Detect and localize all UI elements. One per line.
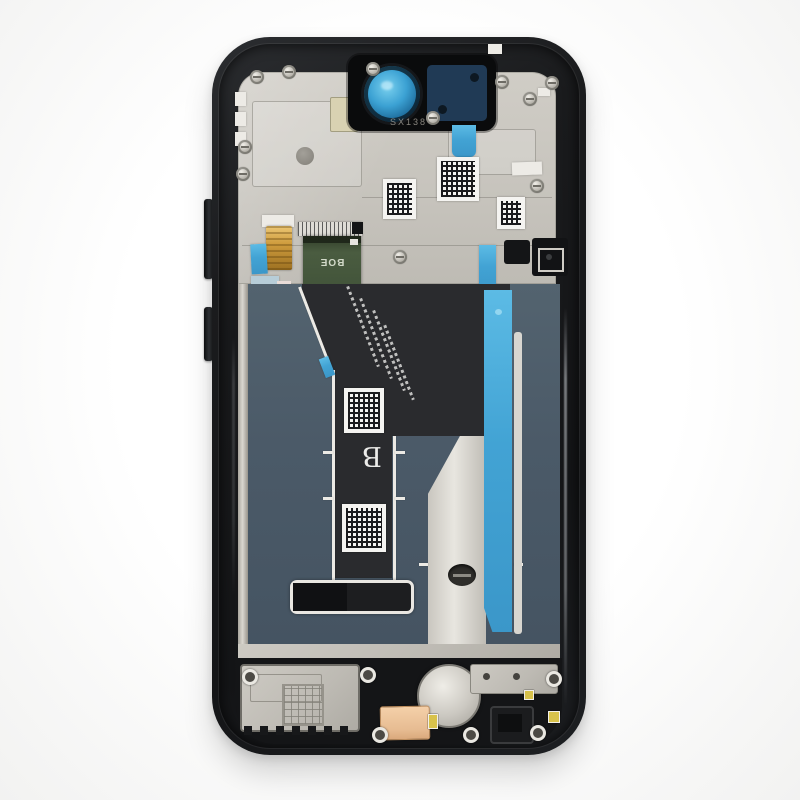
ring-screw-2 xyxy=(360,667,376,683)
gold-flex-cable xyxy=(266,226,292,270)
frame-stamp: SX138 xyxy=(390,117,427,127)
boe-connector-pcb: BOE xyxy=(303,236,361,290)
white-strip-right xyxy=(514,332,522,634)
ribbon-outline-left xyxy=(332,370,335,582)
frame-rail-left xyxy=(238,284,248,660)
qr-sticker-top-right xyxy=(497,197,525,229)
ribbon-connector-bar xyxy=(290,580,414,614)
qr-sticker-ribbon-upper xyxy=(344,388,384,433)
screw-5 xyxy=(495,75,509,89)
gold-contact-1 xyxy=(428,714,438,729)
bottom-module xyxy=(490,706,534,744)
screw-10 xyxy=(393,250,407,264)
top-edge-tab xyxy=(488,44,502,54)
ring-screw-6 xyxy=(372,727,388,743)
tick-right-2 xyxy=(395,497,405,500)
adhesive-tab-camera xyxy=(452,125,476,157)
bracket-dot-2 xyxy=(513,673,520,680)
component-b-bracket xyxy=(538,248,564,272)
blue-tape-dot xyxy=(495,309,502,315)
screw-hole xyxy=(448,564,476,586)
speaker-mesh xyxy=(282,684,324,726)
fpc-chip xyxy=(352,222,363,234)
tick-left-2 xyxy=(323,497,333,500)
ring-screw-5 xyxy=(546,671,562,687)
qr-sticker-top-center xyxy=(437,157,479,201)
bottom-module-core xyxy=(498,714,522,732)
blue-tape-strip xyxy=(484,290,512,632)
screw-3 xyxy=(366,62,380,76)
edge-reflection xyxy=(564,307,567,707)
sensor-dot xyxy=(438,105,447,114)
tick-right-1 xyxy=(395,451,405,454)
component-b-dot xyxy=(546,254,552,260)
screw-6 xyxy=(545,76,559,90)
bracket-dot-1 xyxy=(483,673,490,680)
screw-8 xyxy=(238,140,252,154)
ring-screw-4 xyxy=(530,725,546,741)
screw-2 xyxy=(282,65,296,79)
screw-1 xyxy=(250,70,264,84)
screw-9 xyxy=(236,167,250,181)
ribbon-letter: B xyxy=(352,440,392,471)
tick-left-1 xyxy=(323,451,333,454)
adhesive-tab-left xyxy=(250,244,268,275)
sensor-dot-2 xyxy=(470,73,479,82)
ring-screw-3 xyxy=(463,727,479,743)
blank-label-sticker xyxy=(512,161,542,175)
pcb-corner-pad xyxy=(350,239,358,245)
gold-contact-2 xyxy=(548,711,560,723)
tick-strip-left xyxy=(419,563,428,566)
connector-bar-dark-half xyxy=(293,583,347,611)
edge-pad-2 xyxy=(235,112,246,126)
qr-sticker-top-left xyxy=(383,179,416,219)
screw-4 xyxy=(426,111,440,125)
phone-frame: SX138 BOE xyxy=(212,37,586,755)
screw-7 xyxy=(523,92,537,106)
gold-contact-3 xyxy=(524,690,534,700)
plate-rivet xyxy=(296,147,314,165)
ribbon-outline-right xyxy=(393,436,396,582)
ring-screw-1 xyxy=(242,669,258,685)
edge-pad-1 xyxy=(235,92,246,106)
pcb-brand-label: BOE xyxy=(303,256,361,267)
speaker-serration xyxy=(244,726,354,735)
component-a xyxy=(504,240,530,264)
screw-hole-slot xyxy=(453,574,471,577)
edge-reflection-left xyxy=(232,337,235,597)
screw-11 xyxy=(530,179,544,193)
photo-stage: SX138 BOE xyxy=(0,0,800,800)
qr-sticker-ribbon-lower xyxy=(342,504,386,552)
